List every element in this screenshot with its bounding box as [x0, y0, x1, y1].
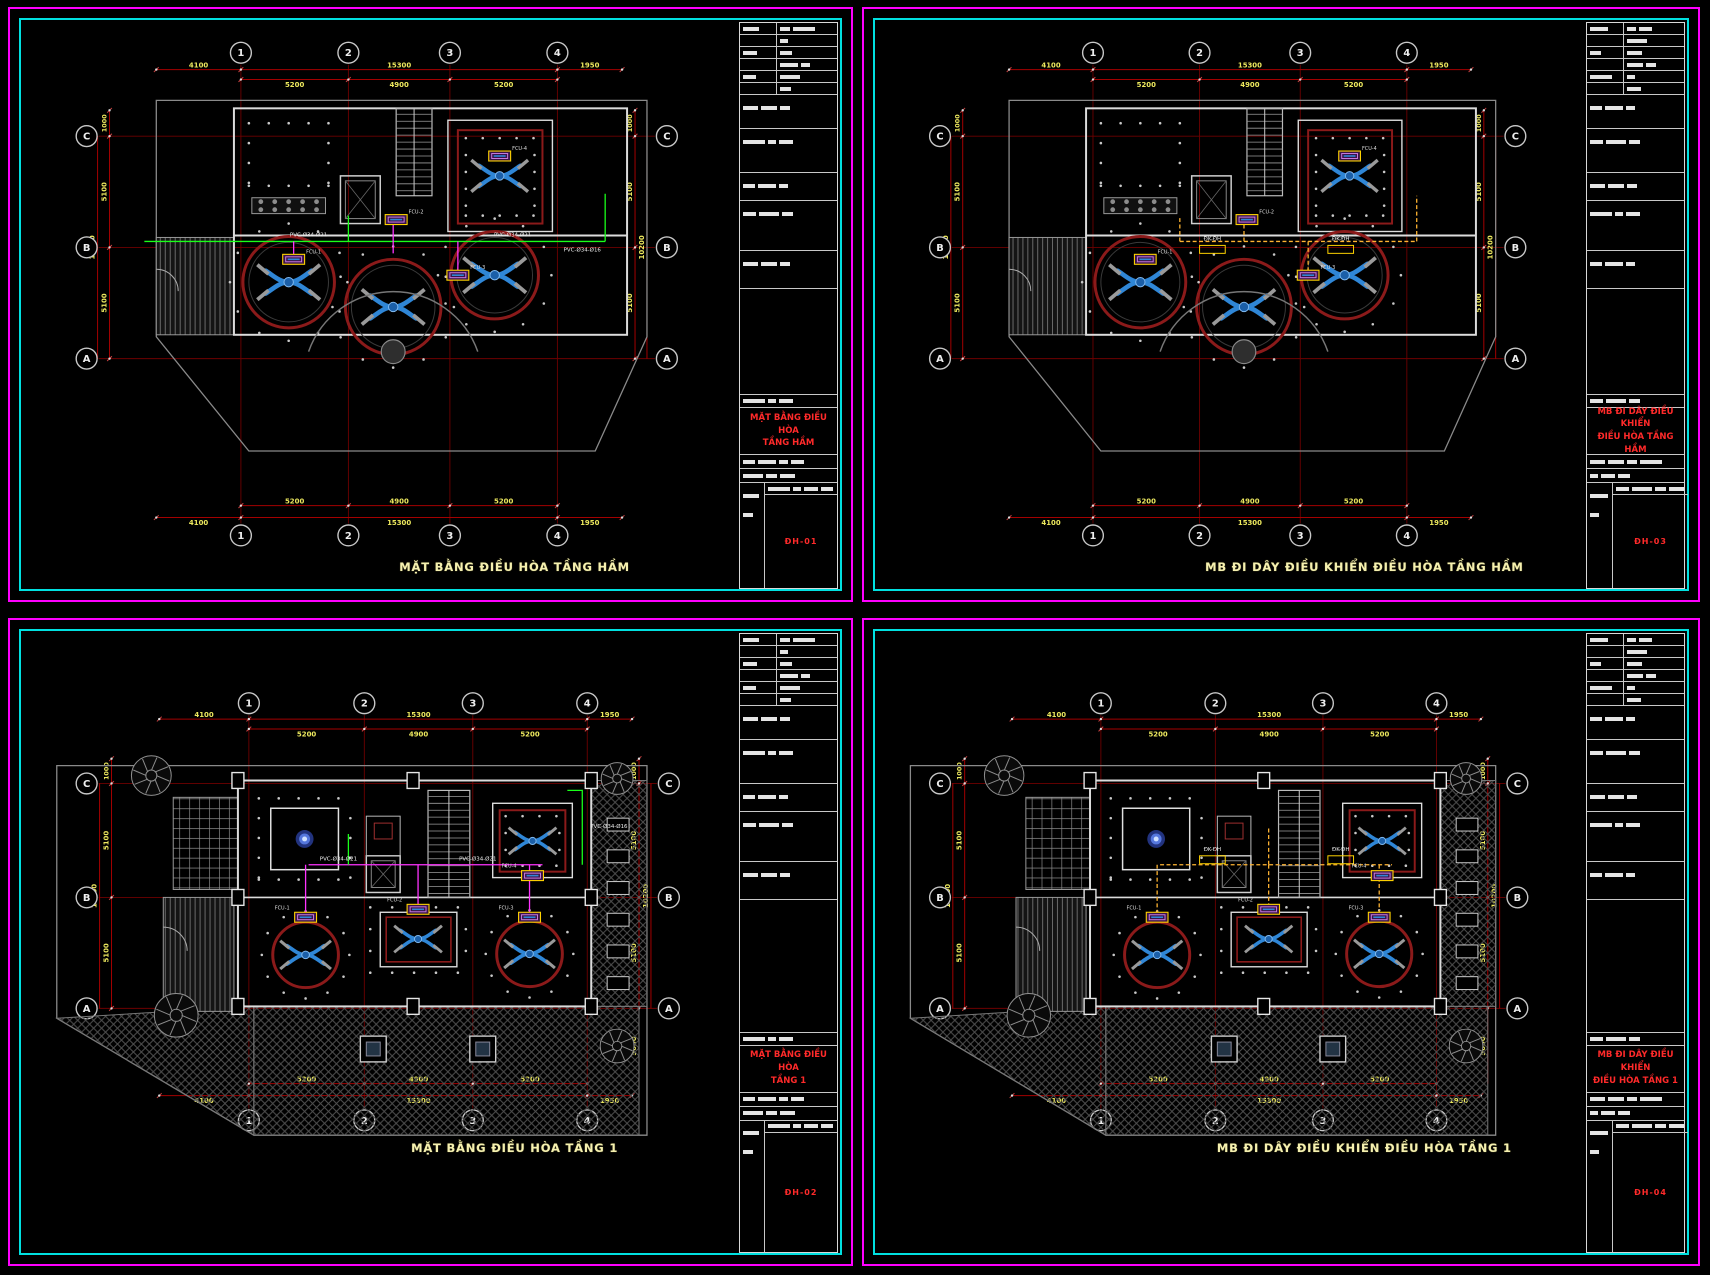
control-wiring: ĐK-ĐHĐK-ĐHFCU-1FCU-2FCU-3FCU-4 — [1127, 828, 1393, 922]
titleblock-text-bar — [1626, 717, 1635, 721]
dim-endpoint — [108, 357, 110, 359]
titleblock-text-bar — [743, 184, 755, 188]
dim-endpoint — [1487, 758, 1489, 760]
dim-endpoint — [1483, 109, 1485, 111]
tree-symbol — [601, 763, 633, 795]
titleblock-row — [1587, 59, 1684, 71]
dim-label: A — [83, 354, 91, 365]
titleblock-text-bar — [743, 1150, 753, 1154]
dim-label: C — [83, 779, 90, 790]
titleblock-text-bar — [1590, 75, 1612, 79]
titleblock-cell — [740, 35, 777, 46]
titleblock-text-bar — [1627, 51, 1642, 55]
titleblock-scale-cell — [1587, 483, 1613, 588]
titleblock-text-bar — [1606, 140, 1626, 144]
titleblock-text-bar — [1669, 1124, 1684, 1128]
titleblock-section — [1587, 173, 1684, 201]
titleblock-cell — [1624, 694, 1684, 705]
titleblock-text-bar — [780, 75, 800, 79]
dim-endpoint — [556, 78, 558, 80]
grid-bubble: 4 — [547, 525, 568, 546]
dim-label: B — [83, 243, 91, 254]
fcu-symbol — [283, 254, 305, 264]
titleblock-text-bar — [1626, 106, 1635, 110]
plan-drawing: 4100153001950520049005200410015300195052… — [864, 9, 1698, 600]
drawing-title-line1: MB ĐI DÂY ĐIỀU KHIỂN — [1587, 406, 1684, 432]
dim-label: 15300 — [387, 519, 411, 527]
sheet-caption: MB ĐI DÂY ĐIỀU KHIỂN ĐIỀU HÒA TẦNG HẦM — [1205, 560, 1524, 574]
titleblock-text-bar — [779, 1037, 793, 1041]
titleblock-text-bar — [743, 460, 755, 464]
titleblock-cell — [740, 682, 777, 693]
plan-label: PVC-Ø34-Ø16 — [564, 246, 602, 253]
fcu-symbol — [519, 912, 541, 922]
fcu-symbol — [522, 871, 544, 881]
dim-label: 2 — [361, 699, 368, 710]
pergola-hatch — [173, 797, 238, 889]
dim-endpoint — [621, 516, 623, 518]
fan-coil-unit — [1312, 256, 1377, 294]
titleblock-text-bar — [1629, 140, 1640, 144]
dim-label: B — [83, 893, 91, 904]
titleblock-text-bar — [779, 399, 793, 403]
dim-label: 4100 — [1041, 62, 1060, 70]
titleblock-text-bar — [1608, 1097, 1624, 1101]
dim-endpoint — [962, 246, 964, 248]
titleblock-cell — [740, 23, 777, 34]
drawing-title-cell: MB ĐI DÂY ĐIỀU KHIỂNĐIỀU HÒA TẦNG HẦM — [1587, 408, 1684, 455]
titleblock-text-bar — [1627, 795, 1637, 799]
grid-bubble: C — [76, 773, 97, 794]
ramp-hatch — [1009, 237, 1086, 334]
titleblock-text-bar — [1627, 184, 1637, 188]
tree-symbol — [1450, 763, 1482, 795]
titleblock-text-bar — [758, 184, 776, 188]
tree-symbol — [154, 994, 198, 1038]
dim-label: 1950 — [580, 519, 600, 527]
titleblock-text-bar — [1632, 1124, 1652, 1128]
titleblock-cell — [1624, 71, 1684, 82]
sheet-dh-01[interactable]: 4100153001950520049005200410015300195052… — [8, 7, 853, 602]
plan-label: ĐK-ĐH — [1332, 236, 1349, 242]
dim-endpoint — [634, 357, 636, 359]
dim-label: 1 — [237, 48, 244, 59]
dim-label: B — [665, 893, 673, 904]
dim-label: 5200 — [1344, 498, 1363, 506]
titleblock-row — [1613, 483, 1688, 495]
titleblock-text-bar — [1655, 1124, 1666, 1128]
titleblock-text-bar — [768, 487, 790, 491]
titleblock-text-bar — [821, 1124, 833, 1128]
dim-endpoint — [158, 1094, 160, 1096]
drawing-canvas: 4100153001950520049005200410015300195052… — [0, 0, 1710, 1275]
dim-label: 5100 — [956, 943, 964, 962]
titleblock-cell — [740, 670, 777, 681]
plan-label: FCU-1 — [306, 249, 321, 255]
titleblock-cell — [1624, 682, 1684, 693]
titleblock-row — [765, 483, 837, 495]
plan-label: FCU-1 — [1158, 249, 1173, 255]
elevator — [1217, 856, 1251, 893]
dim-endpoint — [347, 504, 349, 506]
titleblock-text-bar — [743, 638, 759, 642]
dim-label: 4900 — [1260, 730, 1279, 738]
titleblock-text-bar — [780, 686, 800, 690]
titleblock-text-bar — [1627, 87, 1641, 91]
titleblock-cell — [740, 658, 777, 669]
titleblock-text-bar — [1629, 1037, 1640, 1041]
titleblock-row — [740, 1093, 837, 1107]
dim-endpoint — [363, 728, 365, 730]
titleblock-text-bar — [1590, 27, 1608, 31]
sheet-number: ĐH-04 — [1613, 1133, 1688, 1253]
titleblock-text-bar — [1639, 27, 1652, 31]
titleblock-row — [740, 658, 837, 670]
dim-endpoint — [1435, 728, 1437, 730]
title-block: MẶT BẰNG ĐIỀU HÒATẦNG HẦMĐH-01 — [739, 22, 838, 589]
grid-bubble: A — [658, 998, 679, 1019]
dim-label: 1950 — [1429, 519, 1448, 527]
dim-endpoint — [1198, 78, 1200, 80]
dim-endpoint — [1483, 357, 1485, 359]
dim-label: 4 — [584, 699, 591, 710]
titleblock-text-bar — [1590, 638, 1608, 642]
dim-label: 5200 — [1137, 81, 1156, 89]
grid-bubble: 1 — [230, 42, 251, 63]
dim-endpoint — [449, 78, 451, 80]
titleblock-section — [1587, 784, 1684, 812]
titleblock-text-bar — [1626, 262, 1635, 266]
tree-symbol — [984, 756, 1023, 796]
drawing-title-cell: MẶT BẰNG ĐIỀU HÒATẦNG HẦM — [740, 408, 837, 455]
titleblock-text-bar — [779, 1097, 788, 1101]
dim-label: C — [83, 132, 90, 143]
titleblock-text-bar — [1590, 1131, 1608, 1135]
grid-bubble: 2 — [1205, 693, 1226, 714]
fan-coil-unit — [1131, 940, 1183, 971]
tree-symbol — [131, 756, 171, 796]
titleblock-cell — [740, 47, 777, 58]
titleblock-text-bar — [1627, 686, 1635, 690]
grid-bubble: C — [930, 126, 951, 147]
fan-coil-unit — [1244, 925, 1293, 954]
titleblock-row — [740, 47, 837, 59]
dim-label: 3 — [446, 531, 453, 542]
dim-label: 4 — [1433, 699, 1440, 710]
plan-label: FCU-4 — [1362, 146, 1377, 152]
titleblock-text-bar — [743, 662, 757, 666]
titleblock-cell — [1624, 658, 1684, 669]
titleblock-section — [1587, 201, 1684, 251]
titleblock-text-bar — [1590, 494, 1608, 498]
sheet-caption: MB ĐI DÂY ĐIỀU KHIỂN ĐIỀU HÒA TẦNG 1 — [1217, 1141, 1512, 1155]
titleblock-row — [765, 1121, 837, 1133]
dim-endpoint — [963, 758, 965, 760]
dim-label: 1000 — [103, 762, 111, 780]
titleblock-cell — [777, 682, 837, 693]
dim-endpoint — [962, 109, 964, 111]
dim-label: 4100 — [194, 711, 214, 719]
stairs — [396, 108, 432, 195]
titleblock-text-bar — [743, 212, 756, 216]
titleblock-row — [740, 1033, 837, 1046]
grid-bubble: 4 — [1396, 42, 1417, 63]
titleblock-text-bar — [793, 1124, 801, 1128]
dim-label: 2 — [345, 48, 352, 59]
grid-bubble: C — [1505, 126, 1526, 147]
titleblock-text-bar — [1601, 474, 1615, 478]
grid-bubble: C — [930, 773, 951, 794]
titleblock-cell — [1624, 634, 1684, 645]
titleblock-cell — [1587, 694, 1624, 705]
grid-bubble: 4 — [547, 42, 568, 63]
titleblock-text-bar — [780, 87, 791, 91]
fcu-symbol — [1297, 270, 1319, 280]
dim-endpoint — [1092, 504, 1094, 506]
grid-bubble: B — [1505, 237, 1526, 258]
terrace-hatch — [1106, 1006, 1488, 1135]
grid-bubble: 1 — [1083, 525, 1104, 546]
titleblock-cell — [1624, 23, 1684, 34]
titleblock-text-bar — [1615, 212, 1623, 216]
grid-bubble: 3 — [439, 42, 460, 63]
titleblock-cell — [1587, 646, 1624, 657]
dim-label: 4100 — [1047, 711, 1066, 719]
column — [585, 773, 597, 789]
titleblock-text-bar — [761, 873, 777, 877]
titleblock-text-bar — [1627, 75, 1635, 79]
titleblock-text-bar — [791, 460, 804, 464]
dim-endpoint — [1100, 728, 1102, 730]
dim-endpoint — [556, 504, 558, 506]
dim-label: 3 — [469, 699, 476, 710]
dim-label: 5200 — [1149, 730, 1168, 738]
plan-label: FCU-3 — [470, 265, 485, 271]
titleblock-section — [1587, 862, 1684, 900]
titleblock-text-bar — [768, 399, 776, 403]
titleblock-cell — [1624, 35, 1684, 46]
grid-bubble: 3 — [462, 693, 483, 714]
titleblock-number-cell: ĐH-02 — [765, 1121, 837, 1253]
sheet-dh-04[interactable]: 4100153001950520049005200410015300195052… — [862, 618, 1700, 1266]
titleblock-row — [1587, 1107, 1684, 1121]
dim-label: 4900 — [409, 730, 429, 738]
titleblock-row — [1587, 1033, 1684, 1046]
dim-endpoint — [155, 68, 157, 70]
titleblock-cell — [777, 658, 837, 669]
titleblock-header-table — [1587, 23, 1684, 95]
titleblock-text-bar — [821, 487, 833, 491]
titleblock-cell — [1624, 670, 1684, 681]
titleblock-cell — [777, 71, 837, 82]
fan-coil-unit — [256, 263, 321, 301]
dim-endpoint — [1092, 68, 1094, 70]
titleblock-row — [1587, 47, 1684, 59]
titleblock-cell — [777, 23, 837, 34]
grid-bubble: A — [656, 348, 677, 369]
drawing-title-line2: ĐIỀU HÒA TẦNG 1 — [1587, 1075, 1684, 1088]
titleblock-text-bar — [793, 638, 815, 642]
dim-label: 1 — [1090, 531, 1097, 542]
dim-label: 5100 — [101, 182, 109, 201]
dim-label: 1 — [245, 699, 252, 710]
stairs — [1247, 108, 1283, 195]
titleblock-cell — [777, 35, 837, 46]
dim-label: 4 — [1403, 531, 1410, 542]
titleblock-section — [740, 173, 837, 201]
titleblock-text-bar — [743, 686, 756, 690]
floor-plan-basement — [1009, 100, 1496, 451]
dim-label: 3 — [1297, 48, 1304, 59]
fcu-symbol — [1339, 151, 1361, 161]
sheet-caption: MẶT BẰNG ĐIỀU HÒA TẦNG 1 — [411, 1141, 618, 1155]
titleblock-text-bar — [801, 63, 810, 67]
plan-label: FCU-2 — [1259, 210, 1274, 216]
titleblock-number-cell: ĐH-04 — [1613, 1121, 1688, 1253]
drawing-title-line1: MẶT BẰNG ĐIỀU HÒA — [740, 412, 837, 438]
titleblock-text-bar — [1590, 513, 1599, 517]
dim-endpoint — [240, 504, 242, 506]
titleblock-scale-cell — [740, 1121, 765, 1253]
titleblock-text-bar — [1626, 873, 1635, 877]
titleblock-text-bar — [780, 106, 790, 110]
fan-coil-unit — [1353, 939, 1405, 970]
fcu-symbol — [1146, 912, 1168, 922]
titleblock-text-bar — [780, 262, 790, 266]
titleblock-text-bar — [1639, 638, 1652, 642]
titleblock-text-bar — [758, 795, 776, 799]
titleblock-text-bar — [1605, 717, 1623, 721]
titleblock-text-bar — [1626, 212, 1640, 216]
titleblock-bottom: ĐH-02 — [740, 1121, 837, 1253]
sheet-dh-02[interactable]: 4100153001950520049005200410015300195052… — [8, 618, 853, 1266]
titleblock-row — [740, 682, 837, 694]
titleblock-text-bar — [780, 717, 790, 721]
drawing-title-line2: TẦNG HẦM — [740, 437, 837, 450]
grid-bubble: B — [930, 887, 951, 908]
dim-label: 4100 — [189, 62, 209, 70]
dim-label: C — [1514, 779, 1521, 790]
plan-label: ĐK-ĐH — [1332, 847, 1349, 853]
drawing-title-line2: TẦNG 1 — [740, 1075, 837, 1088]
dim-endpoint — [963, 1007, 965, 1009]
titleblock-text-bar — [1655, 487, 1666, 491]
titleblock-text-bar — [1632, 487, 1652, 491]
plan-label: PVC-Ø34-Ø21 — [494, 231, 531, 238]
drawing-title-line1: MB ĐI DÂY ĐIỀU KHIỂN — [1587, 1049, 1684, 1075]
titleblock-section — [740, 812, 837, 862]
titleblock-row — [740, 1107, 837, 1121]
plan-label: FCU-1 — [1127, 905, 1142, 911]
titleblock-spacer — [740, 289, 837, 395]
titleblock-text-bar — [780, 39, 788, 43]
dim-label: B — [1512, 243, 1520, 254]
titleblock-text-bar — [743, 823, 756, 827]
column — [1084, 889, 1096, 905]
dim-endpoint — [631, 718, 633, 720]
titleblock-text-bar — [1590, 184, 1605, 188]
titleblock-text-bar — [1616, 487, 1629, 491]
dim-label: 3 — [1297, 531, 1304, 542]
fcu-symbol — [1236, 215, 1258, 225]
dim-endpoint — [1198, 504, 1200, 506]
column — [1084, 773, 1096, 789]
titleblock-row — [1587, 646, 1684, 658]
titleblock-row — [740, 670, 837, 682]
titleblock-text-bar — [768, 1037, 776, 1041]
dim-label: 4900 — [389, 81, 409, 89]
dim-endpoint — [1406, 516, 1408, 518]
titleblock-cell — [1624, 47, 1684, 58]
titleblock-cell — [777, 634, 837, 645]
drawing-title-cell: MẶT BẰNG ĐIỀU HÒATẦNG 1 — [740, 1046, 837, 1093]
titleblock-text-bar — [780, 51, 792, 55]
dim-label: 3 — [446, 48, 453, 59]
grid-bubble: B — [656, 237, 677, 258]
titleblock-cell — [1587, 83, 1624, 94]
titleblock-text-bar — [1590, 1150, 1599, 1154]
column — [585, 998, 597, 1014]
titleblock-text-bar — [1590, 873, 1602, 877]
plan-label: FCU-1 — [275, 905, 290, 911]
titleblock-cell — [777, 670, 837, 681]
dim-endpoint — [634, 109, 636, 111]
dim-label: B — [936, 243, 944, 254]
titleblock-bottom: ĐH-01 — [740, 483, 837, 588]
elevator — [340, 176, 380, 224]
sheet-number: ĐH-02 — [765, 1133, 837, 1253]
dim-label: 5100 — [103, 943, 111, 962]
sheet-dh-03[interactable]: 4100153001950520049005200410015300195052… — [862, 7, 1700, 602]
titleblock-cell — [740, 83, 777, 94]
titleblock-text-bar — [780, 674, 798, 678]
dim-endpoint — [1480, 718, 1482, 720]
dim-label: 1000 — [954, 114, 962, 132]
meeting-table — [252, 198, 326, 214]
titleblock-text-bar — [743, 27, 759, 31]
drawing-title-line2: ĐIỀU HÒA TẦNG HẦM — [1587, 431, 1684, 457]
titleblock-text-bar — [743, 1131, 759, 1135]
dim-endpoint — [240, 78, 242, 80]
titleblock-row — [740, 694, 837, 706]
plan-label: PVC-Ø34-Ø21 — [320, 856, 357, 863]
titleblock-text-bar — [793, 487, 801, 491]
dim-endpoint — [1011, 1094, 1013, 1096]
fcu-symbol — [1258, 904, 1280, 914]
dim-endpoint — [586, 718, 588, 720]
dim-endpoint — [1483, 246, 1485, 248]
titleblock-number-cell: ĐH-01 — [765, 483, 837, 588]
fcu-symbol — [295, 912, 317, 922]
titleblock-text-bar — [1640, 1097, 1662, 1101]
titleblock-row — [740, 646, 837, 658]
dim-endpoint — [1100, 718, 1102, 720]
plan-label: FCU-4 — [512, 146, 527, 152]
dim-endpoint — [963, 782, 965, 784]
dim-label: 15300 — [1257, 711, 1281, 719]
titleblock-cell — [1587, 670, 1624, 681]
grid-bubble: 2 — [1189, 525, 1210, 546]
titleblock-text-bar — [1618, 474, 1630, 478]
titleblock-cell — [1587, 35, 1624, 46]
grid-bubble: B — [76, 237, 97, 258]
grid-bubble: 4 — [1396, 525, 1417, 546]
dim-label: 5100 — [101, 293, 109, 312]
grid-bubble: 4 — [577, 693, 598, 714]
dim-label: A — [1514, 1004, 1522, 1015]
dim-label: 1950 — [600, 711, 620, 719]
dim-endpoint — [1092, 516, 1094, 518]
